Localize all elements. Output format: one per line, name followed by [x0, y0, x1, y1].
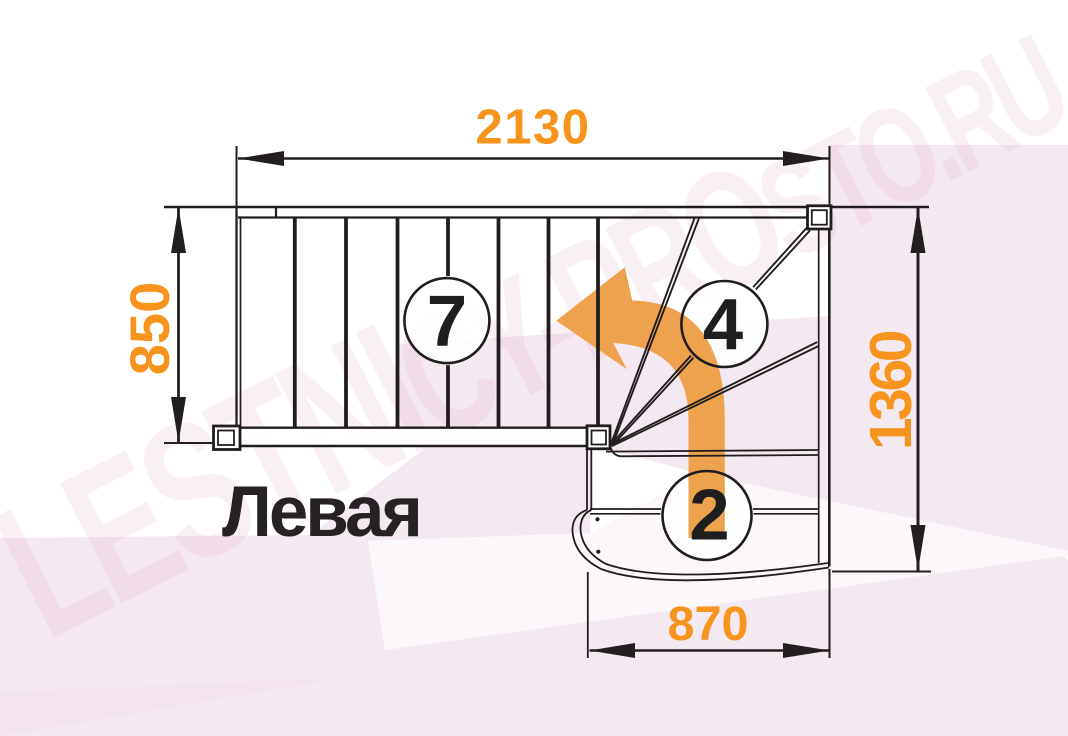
svg-text:850: 850: [118, 282, 181, 375]
svg-text:7: 7: [427, 281, 467, 362]
svg-text:870: 870: [668, 597, 749, 651]
svg-text:4: 4: [703, 284, 744, 365]
svg-text:2: 2: [689, 475, 729, 556]
svg-text:1360: 1360: [858, 331, 924, 450]
svg-text:Левая: Левая: [222, 473, 420, 552]
svg-text:2130: 2130: [475, 101, 590, 155]
